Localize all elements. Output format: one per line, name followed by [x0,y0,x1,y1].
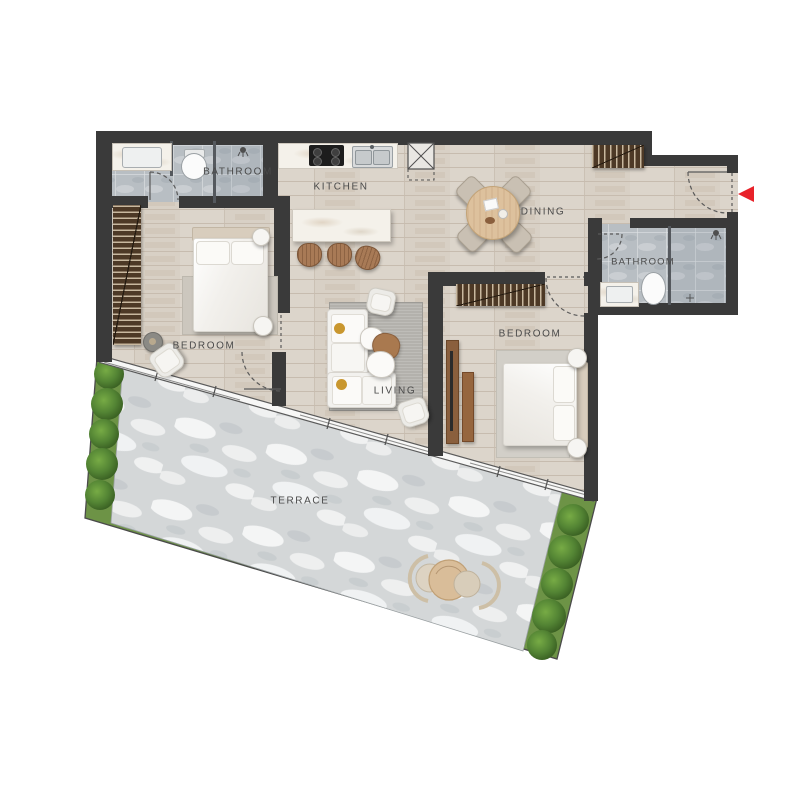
toilet-2 [641,272,665,304]
entry-arrow-icon [738,186,754,202]
dining-table [466,186,520,240]
bedroom-2-nightstand [567,348,587,368]
bar-stool [297,243,322,267]
bedroom-2-tv-console [446,340,459,444]
bedroom-1-nightstand [253,316,273,336]
bar-stool [327,243,352,267]
coffee-table [366,351,395,378]
bedroom-1-nightstand [252,228,270,246]
room-label-living: LIVING [374,386,416,397]
bedroom-1-wardrobe [113,205,141,345]
bedroom-2-bench [462,372,474,442]
room-label-bedroom-1: BEDROOM [173,341,236,352]
stove [309,145,344,166]
bedroom-2-nightstand [567,438,587,458]
room-label-terrace: TERRACE [271,496,330,507]
terrace-seat-right [454,571,480,597]
entry-closet [592,145,644,168]
room-label-dining: DINING [521,207,566,218]
kitchen-island [292,209,391,242]
kitchen-sink [352,146,393,168]
room-label-bathroom-1: BATHROOM [203,167,273,178]
room-label-bathroom-2: BATHROOM [611,257,675,268]
bathroom-2-vanity [600,282,639,307]
floor-plan: BATHROOM KITCHEN DINING BATHROOM BEDROOM… [0,0,800,800]
bedroom-2-bed [503,362,586,446]
bedroom-2-wardrobe [456,284,545,306]
bathroom-1-vanity [112,143,172,171]
room-label-kitchen: KITCHEN [313,182,368,193]
room-label-bedroom-2: BEDROOM [499,329,562,340]
